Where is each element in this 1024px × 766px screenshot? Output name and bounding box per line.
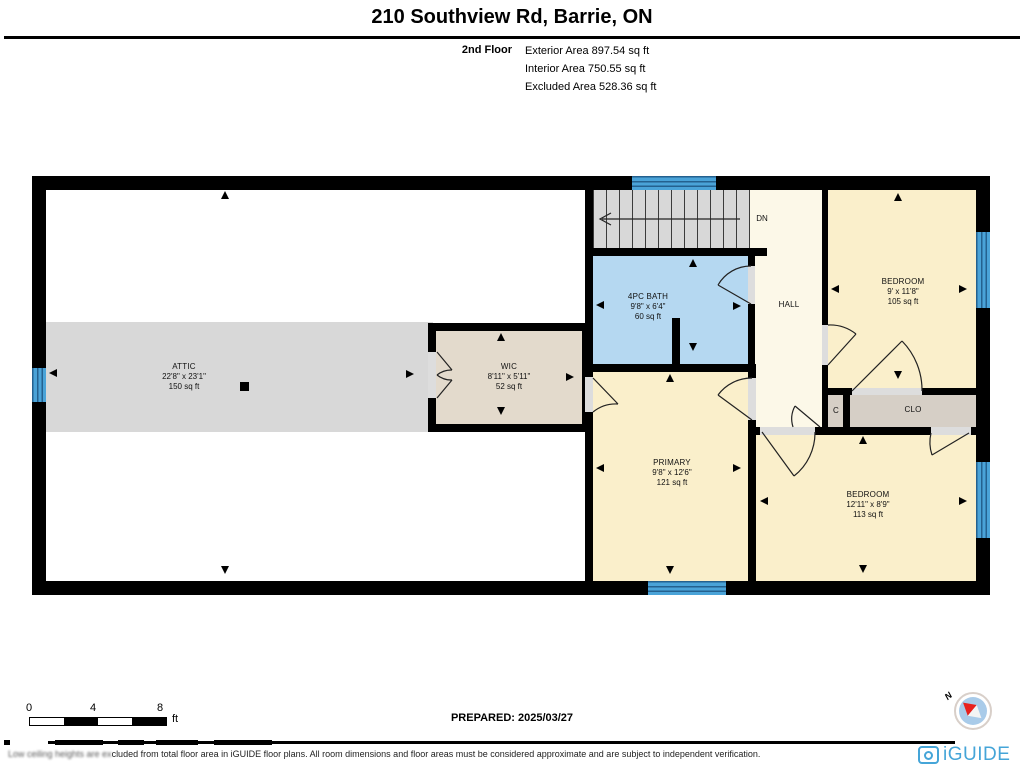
floorplan-page: { "header": { "title": "210 Southview Rd… bbox=[0, 0, 1024, 766]
dim-arrow bbox=[959, 285, 967, 293]
outer-wall-top bbox=[32, 176, 990, 190]
watermark-fragment bbox=[156, 740, 198, 745]
room-bath bbox=[593, 256, 748, 364]
wall-clo-top bbox=[822, 388, 852, 395]
dim-arrow bbox=[859, 565, 867, 573]
wall-stairs-bottom bbox=[585, 248, 767, 256]
window-attic-left bbox=[32, 368, 46, 402]
wall-bath-partition bbox=[672, 318, 680, 364]
dim-arrow bbox=[689, 259, 697, 267]
dim-arrow bbox=[733, 302, 741, 310]
dim-arrow bbox=[49, 369, 57, 377]
compass: N bbox=[954, 692, 992, 730]
wall-hall-bedroom bbox=[822, 365, 828, 427]
dim-arrow bbox=[596, 301, 604, 309]
dim-arrow bbox=[760, 497, 768, 505]
threshold bbox=[852, 388, 922, 395]
label-wic: WIC 8'11" x 5'11" 52 sq ft bbox=[488, 362, 531, 392]
compass-north-label: N bbox=[943, 690, 954, 702]
brand-name: iGUIDE bbox=[943, 744, 1010, 766]
wall-c-clo bbox=[843, 395, 850, 427]
threshold bbox=[760, 427, 815, 435]
label-stairs-dn: DN bbox=[756, 214, 768, 224]
wall-row-bottom bbox=[748, 427, 760, 435]
threshold bbox=[748, 266, 755, 304]
dim-arrow bbox=[497, 407, 505, 415]
label-primary: PRIMARY 9'8" x 12'6" 121 sq ft bbox=[652, 458, 691, 488]
watermark-fragment bbox=[55, 740, 103, 745]
dim-arrow bbox=[596, 464, 604, 472]
window-bedroom-top-right bbox=[976, 232, 990, 308]
header-divider bbox=[4, 36, 1020, 39]
dim-arrow bbox=[221, 191, 229, 199]
iguide-logo: iGUIDE bbox=[918, 744, 1010, 766]
watermark-fragment bbox=[214, 740, 272, 745]
wall-bath-hall bbox=[748, 304, 755, 364]
label-hall: HALL bbox=[779, 300, 800, 310]
dim-arrow bbox=[689, 343, 697, 351]
wall-hall-bedroom bbox=[822, 190, 828, 325]
dim-arrow bbox=[894, 371, 902, 379]
wall-primary-right bbox=[748, 364, 756, 378]
label-closet-c: C bbox=[833, 406, 839, 416]
window-stairs-top bbox=[632, 176, 716, 190]
threshold bbox=[428, 352, 436, 398]
dim-arrow bbox=[733, 464, 741, 472]
wall-attic-divider bbox=[585, 412, 593, 581]
threshold bbox=[748, 378, 756, 420]
threshold bbox=[822, 325, 828, 365]
watermark-fragment bbox=[4, 740, 10, 745]
wall-clo-top bbox=[922, 388, 976, 395]
threshold bbox=[585, 377, 593, 412]
label-bedroom-bottom: BEDROOM 12'11" x 8'9" 113 sq ft bbox=[846, 490, 889, 520]
disclaimer-text: Low ceiling heights are excluded from to… bbox=[8, 749, 858, 759]
label-bath: 4PC BATH 9'8" x 6'4" 60 sq ft bbox=[628, 292, 668, 322]
exterior-area: Exterior Area 897.54 sq ft bbox=[525, 45, 649, 57]
wall-primary-right bbox=[748, 420, 756, 581]
label-bedroom-top: BEDROOM 9' x 11'8" 105 sq ft bbox=[882, 277, 925, 307]
dim-arrow bbox=[406, 370, 414, 378]
attic-post bbox=[240, 382, 249, 391]
dim-arrow bbox=[666, 566, 674, 574]
dim-arrow bbox=[566, 373, 574, 381]
floor-label: 2nd Floor bbox=[400, 44, 512, 56]
label-attic: ATTIC 22'8" x 23'1" 150 sq ft bbox=[162, 362, 206, 392]
page-title: 210 Southview Rd, Barrie, ON bbox=[0, 6, 1024, 29]
wall-bath-hall bbox=[748, 256, 755, 266]
attic-floor-area bbox=[46, 322, 433, 432]
dim-arrow bbox=[959, 497, 967, 505]
wall-row-bottom bbox=[971, 427, 976, 435]
watermark-fragment bbox=[118, 740, 144, 745]
dim-arrow bbox=[831, 285, 839, 293]
dim-arrow bbox=[221, 566, 229, 574]
wall-bath-bottom bbox=[585, 364, 755, 372]
wall-attic-divider bbox=[585, 190, 593, 377]
wall-row-bottom bbox=[815, 427, 931, 435]
interior-area: Interior Area 750.55 sq ft bbox=[525, 63, 645, 75]
dim-arrow bbox=[894, 193, 902, 201]
dim-arrow bbox=[859, 436, 867, 444]
threshold bbox=[931, 427, 971, 435]
camera-icon bbox=[918, 746, 939, 764]
dim-arrow bbox=[666, 374, 674, 382]
prepared-date: PREPARED: 2025/03/27 bbox=[0, 712, 1024, 724]
staircase bbox=[593, 190, 750, 248]
excluded-area: Excluded Area 528.36 sq ft bbox=[525, 81, 656, 93]
window-primary-bottom bbox=[648, 581, 726, 595]
outer-wall-bottom bbox=[32, 581, 990, 595]
window-bedroom-bottom-right bbox=[976, 462, 990, 538]
label-clo: CLO bbox=[904, 405, 921, 415]
dim-arrow bbox=[497, 333, 505, 341]
